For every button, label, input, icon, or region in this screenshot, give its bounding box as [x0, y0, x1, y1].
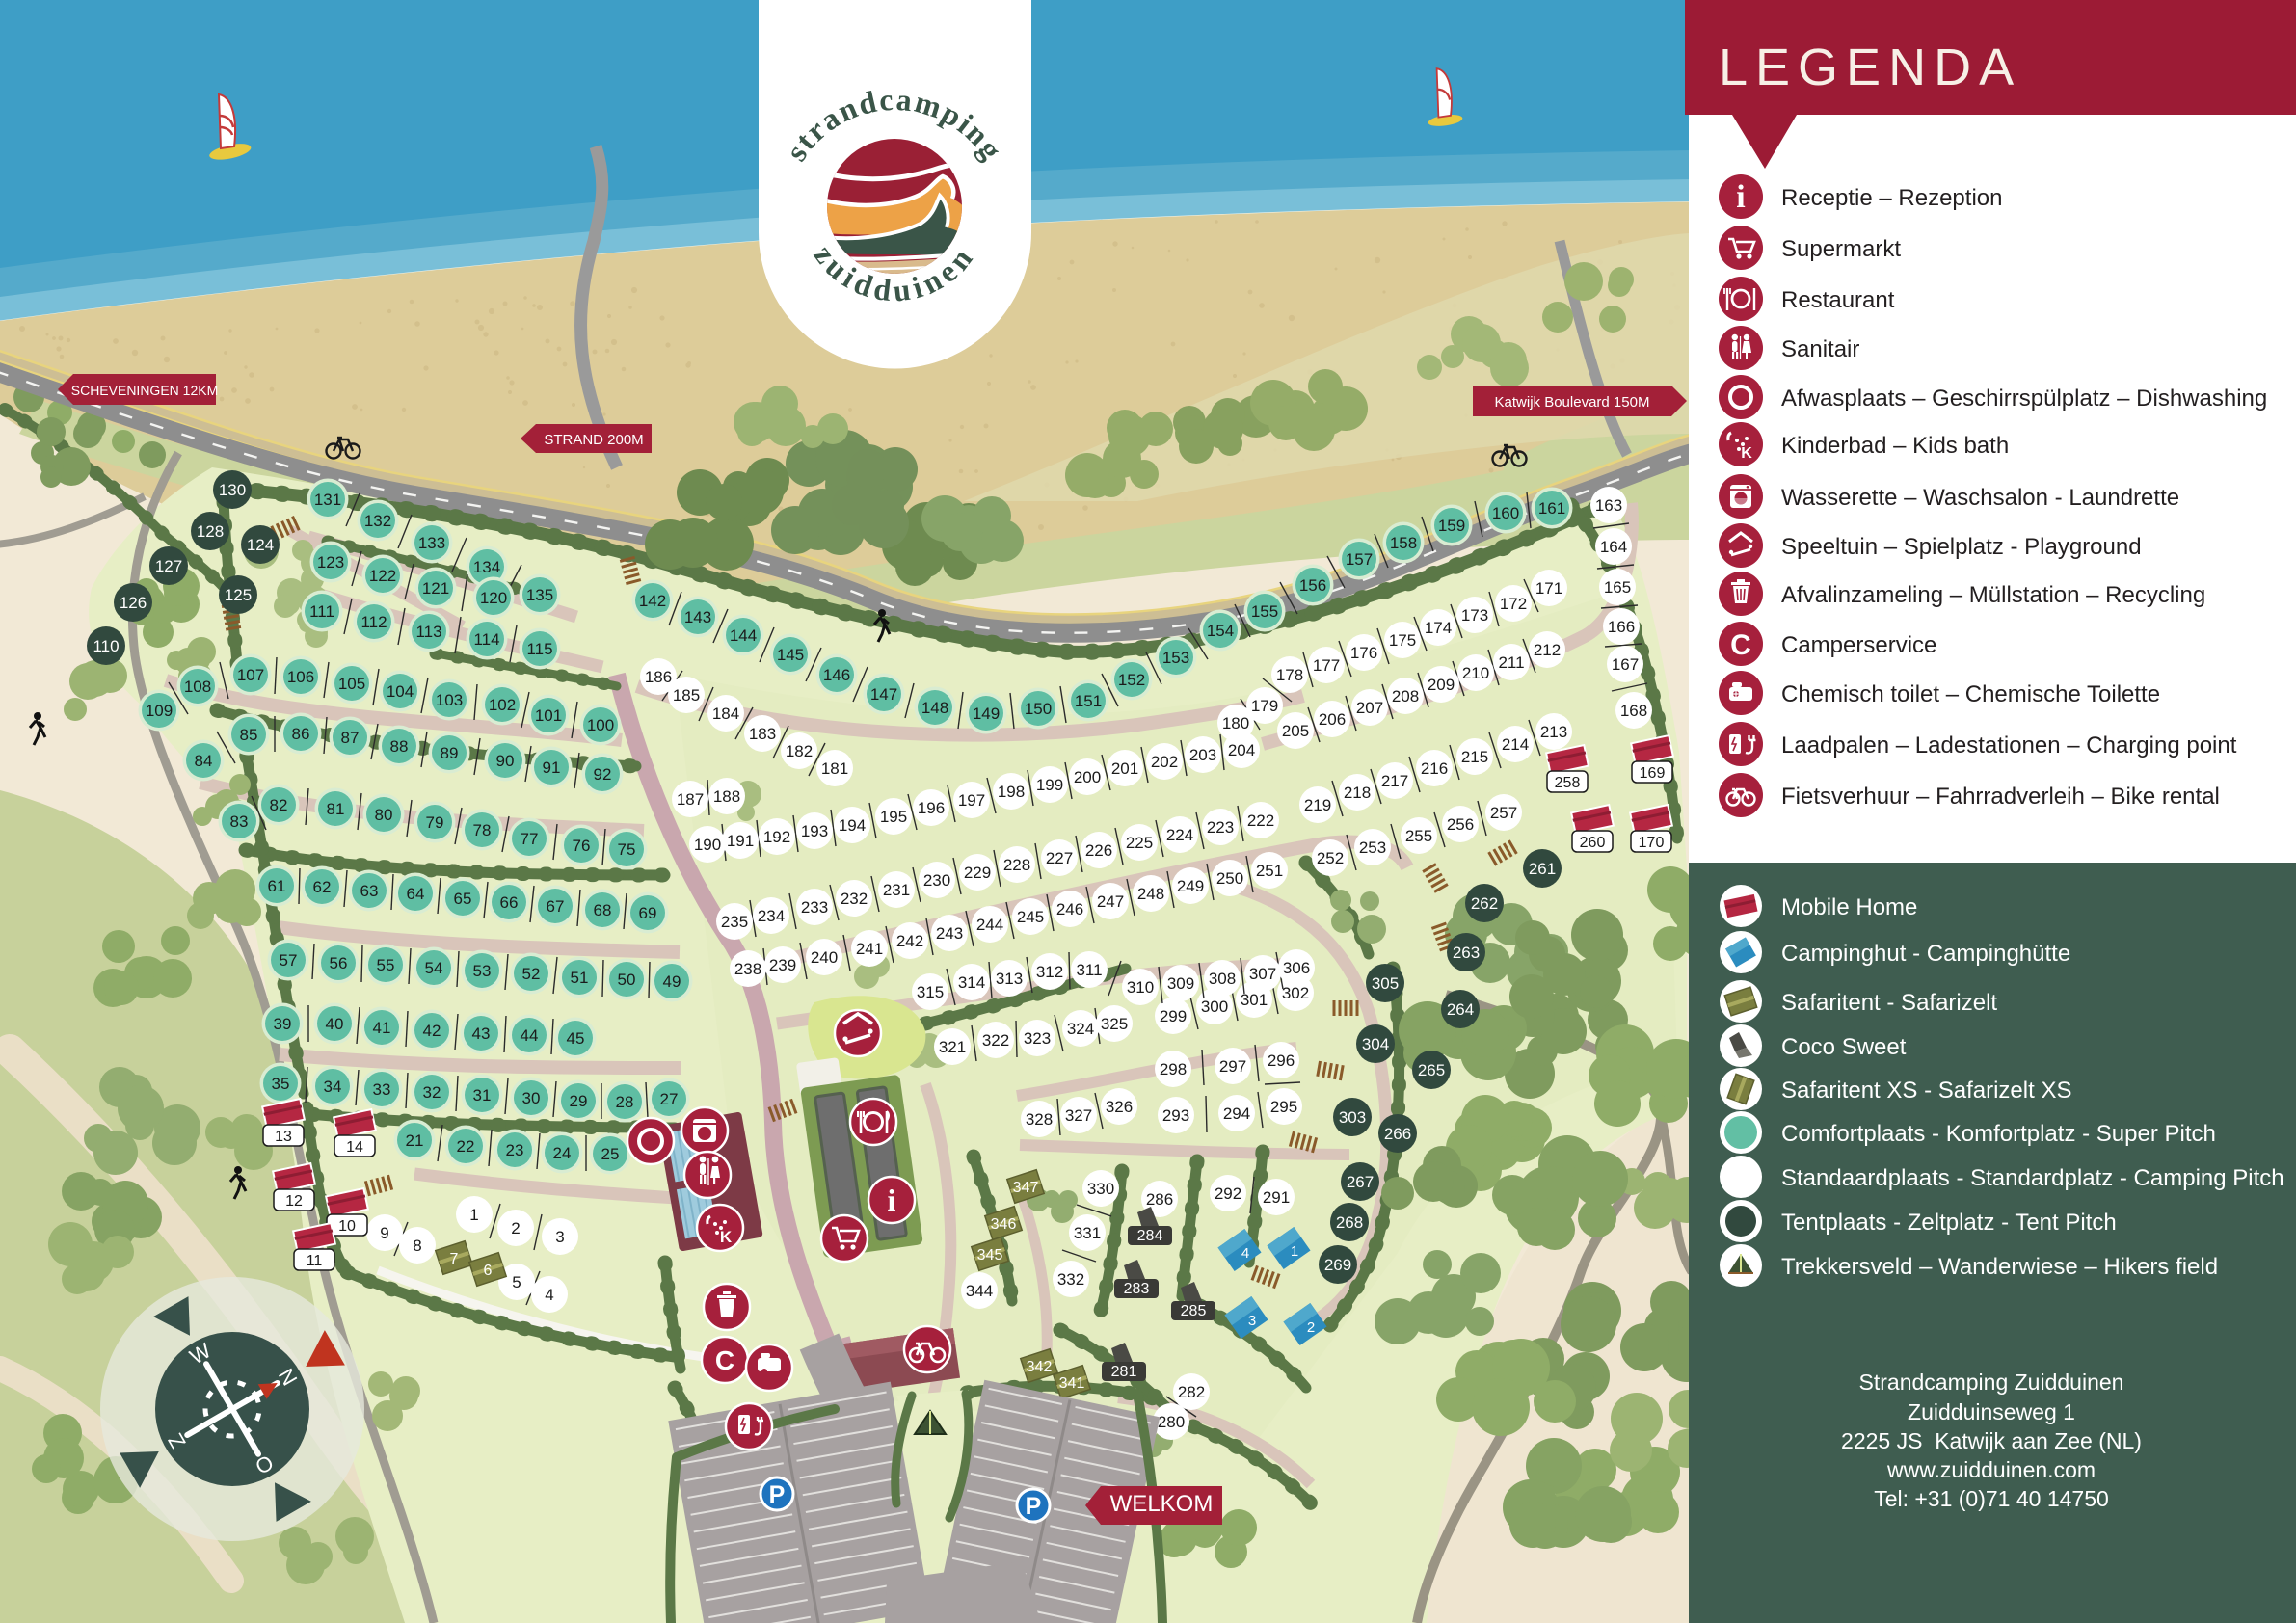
svg-text:150: 150 — [1025, 700, 1052, 718]
svg-text:Supermarkt: Supermarkt — [1781, 236, 1901, 262]
svg-text:251: 251 — [1256, 862, 1283, 880]
svg-text:Coco Sweet: Coco Sweet — [1781, 1034, 1907, 1060]
svg-text:297: 297 — [1219, 1057, 1246, 1076]
svg-text:148: 148 — [921, 699, 948, 717]
svg-text:197: 197 — [958, 791, 985, 810]
svg-text:346: 346 — [991, 1216, 1017, 1233]
svg-text:230: 230 — [923, 871, 950, 890]
svg-text:91: 91 — [543, 758, 561, 777]
svg-text:64: 64 — [407, 885, 425, 903]
svg-text:175: 175 — [1389, 631, 1416, 650]
svg-text:300: 300 — [1201, 998, 1228, 1016]
svg-text:309: 309 — [1167, 974, 1194, 993]
svg-text:182: 182 — [786, 742, 813, 760]
svg-text:225: 225 — [1126, 834, 1153, 852]
svg-text:115: 115 — [526, 640, 552, 658]
svg-text:84: 84 — [195, 752, 213, 770]
svg-text:330: 330 — [1087, 1180, 1114, 1198]
svg-text:326: 326 — [1106, 1098, 1133, 1116]
svg-text:209: 209 — [1428, 676, 1455, 694]
svg-text:i: i — [888, 1183, 896, 1217]
svg-text:235: 235 — [721, 913, 748, 931]
svg-text:35: 35 — [272, 1075, 290, 1093]
svg-text:7: 7 — [450, 1251, 459, 1267]
svg-text:130: 130 — [219, 481, 246, 499]
svg-text:25: 25 — [601, 1145, 620, 1163]
svg-text:82: 82 — [270, 796, 288, 814]
svg-text:201: 201 — [1111, 759, 1138, 778]
svg-text:3: 3 — [1248, 1313, 1256, 1329]
svg-text:i: i — [1736, 179, 1745, 215]
svg-text:249: 249 — [1177, 877, 1204, 895]
svg-text:WELKOM: WELKOM — [1110, 1491, 1214, 1517]
svg-text:223: 223 — [1207, 818, 1234, 837]
svg-text:126: 126 — [120, 594, 147, 612]
svg-text:187: 187 — [677, 790, 704, 809]
svg-text:174: 174 — [1425, 619, 1452, 637]
svg-text:62: 62 — [313, 878, 332, 896]
svg-text:C: C — [715, 1345, 734, 1375]
svg-text:Fietsverhuur – Fahrradverleih: Fietsverhuur – Fahrradverleih – Bike ren… — [1781, 784, 2220, 810]
svg-text:307: 307 — [1249, 965, 1276, 983]
svg-text:56: 56 — [330, 954, 348, 972]
svg-text:Restaurant: Restaurant — [1781, 287, 1895, 313]
svg-text:13: 13 — [275, 1129, 292, 1145]
svg-text:153: 153 — [1162, 649, 1189, 667]
svg-text:240: 240 — [811, 948, 838, 967]
svg-text:80: 80 — [375, 806, 393, 824]
svg-text:77: 77 — [521, 830, 539, 848]
svg-text:198: 198 — [998, 783, 1025, 801]
svg-text:Speeltuin – Spielplatz - Playg: Speeltuin – Spielplatz - Playground — [1781, 534, 2142, 560]
svg-text:233: 233 — [801, 898, 828, 917]
svg-text:280: 280 — [1158, 1413, 1185, 1431]
svg-text:30: 30 — [522, 1089, 541, 1107]
svg-text:86: 86 — [292, 725, 310, 743]
svg-text:Tel: +31 (0)71 40 14750: Tel: +31 (0)71 40 14750 — [1874, 1486, 2109, 1511]
svg-text:128: 128 — [197, 522, 224, 541]
svg-text:85: 85 — [240, 726, 258, 744]
svg-text:111: 111 — [309, 602, 334, 621]
svg-text:305: 305 — [1372, 974, 1399, 993]
svg-text:89: 89 — [441, 744, 459, 762]
svg-text:345: 345 — [977, 1247, 1003, 1264]
svg-text:122: 122 — [369, 567, 396, 585]
svg-text:33: 33 — [373, 1080, 391, 1099]
svg-text:155: 155 — [1251, 602, 1278, 621]
svg-text:5: 5 — [512, 1273, 521, 1291]
svg-text:28: 28 — [616, 1093, 634, 1111]
svg-text:106: 106 — [287, 668, 314, 686]
svg-text:27: 27 — [660, 1090, 679, 1108]
svg-text:203: 203 — [1189, 746, 1216, 764]
svg-text:133: 133 — [418, 534, 445, 552]
svg-text:325: 325 — [1101, 1015, 1128, 1033]
svg-text:151: 151 — [1075, 692, 1102, 710]
svg-text:327: 327 — [1065, 1106, 1092, 1125]
svg-text:21: 21 — [406, 1131, 424, 1150]
svg-text:217: 217 — [1381, 772, 1408, 790]
svg-text:143: 143 — [684, 608, 711, 626]
svg-text:113: 113 — [415, 623, 441, 641]
svg-text:2: 2 — [1307, 1319, 1315, 1336]
svg-text:Afwasplaats – Geschirrspülplat: Afwasplaats – Geschirrspülplatz – Dishwa… — [1781, 386, 2267, 412]
svg-text:Safaritent XS - Safarizelt XS: Safaritent XS - Safarizelt XS — [1781, 1078, 2071, 1104]
svg-text:267: 267 — [1347, 1173, 1374, 1191]
svg-text:103: 103 — [436, 691, 463, 709]
svg-text:227: 227 — [1046, 849, 1073, 867]
svg-text:323: 323 — [1024, 1029, 1051, 1048]
svg-text:324: 324 — [1067, 1020, 1094, 1038]
svg-text:265: 265 — [1418, 1061, 1445, 1079]
svg-text:208: 208 — [1392, 687, 1419, 705]
svg-text:123: 123 — [317, 553, 344, 572]
svg-text:Comfortplaats - Komfortplatz -: Comfortplaats - Komfortplatz - Super Pit… — [1781, 1121, 2216, 1147]
svg-text:114: 114 — [473, 630, 499, 649]
svg-text:302: 302 — [1282, 984, 1309, 1002]
svg-text:269: 269 — [1324, 1256, 1351, 1274]
svg-text:45: 45 — [567, 1029, 585, 1048]
svg-text:6: 6 — [484, 1263, 493, 1279]
svg-text:76: 76 — [573, 837, 591, 855]
svg-text:169: 169 — [1640, 765, 1666, 782]
svg-text:157: 157 — [1346, 550, 1373, 569]
svg-text:204: 204 — [1228, 741, 1255, 759]
svg-text:67: 67 — [547, 897, 565, 916]
svg-text:284: 284 — [1137, 1228, 1163, 1244]
svg-text:57: 57 — [280, 951, 298, 970]
svg-text:192: 192 — [763, 828, 790, 846]
svg-text:308: 308 — [1209, 970, 1236, 988]
svg-text:214: 214 — [1502, 735, 1529, 754]
svg-text:166: 166 — [1608, 618, 1635, 636]
svg-text:146: 146 — [823, 666, 850, 684]
svg-text:178: 178 — [1276, 666, 1303, 684]
svg-text:158: 158 — [1390, 534, 1417, 552]
svg-text:152: 152 — [1118, 671, 1145, 689]
svg-text:186: 186 — [645, 668, 672, 686]
svg-text:200: 200 — [1074, 768, 1101, 786]
svg-text:Standaardplaats - Standardplat: Standaardplaats - Standardplatz - Campin… — [1781, 1165, 2284, 1191]
svg-text:342: 342 — [1027, 1359, 1053, 1375]
svg-text:135: 135 — [526, 586, 553, 604]
svg-text:247: 247 — [1097, 892, 1124, 911]
svg-text:206: 206 — [1319, 710, 1346, 729]
svg-text:295: 295 — [1270, 1098, 1297, 1116]
svg-text:107: 107 — [237, 666, 264, 684]
svg-text:C: C — [1730, 629, 1751, 661]
svg-text:224: 224 — [1166, 826, 1193, 844]
svg-text:312: 312 — [1036, 963, 1063, 981]
svg-text:181: 181 — [821, 759, 848, 778]
svg-text:LEGENDA: LEGENDA — [1719, 39, 2021, 96]
svg-text:191: 191 — [727, 832, 754, 850]
svg-text:229: 229 — [964, 864, 991, 882]
svg-text:39: 39 — [274, 1015, 292, 1033]
svg-text:170: 170 — [1639, 835, 1665, 851]
svg-text:232: 232 — [841, 890, 868, 908]
svg-text:256: 256 — [1447, 815, 1474, 834]
svg-text:44: 44 — [521, 1026, 539, 1045]
svg-text:177: 177 — [1313, 656, 1340, 675]
svg-text:261: 261 — [1529, 860, 1556, 878]
svg-text:108: 108 — [184, 678, 211, 696]
svg-text:199: 199 — [1036, 776, 1063, 794]
svg-text:294: 294 — [1223, 1104, 1250, 1123]
svg-text:344: 344 — [966, 1282, 993, 1300]
svg-text:81: 81 — [327, 800, 345, 818]
svg-text:303: 303 — [1339, 1108, 1366, 1127]
svg-text:311: 311 — [1076, 961, 1102, 979]
svg-text:4: 4 — [545, 1286, 553, 1304]
svg-text:68: 68 — [594, 901, 612, 919]
svg-text:105: 105 — [338, 675, 365, 693]
svg-text:298: 298 — [1160, 1060, 1187, 1078]
svg-text:Camperservice: Camperservice — [1781, 632, 1936, 658]
svg-text:285: 285 — [1181, 1303, 1207, 1319]
svg-text:179: 179 — [1251, 697, 1278, 715]
svg-text:241: 241 — [856, 940, 883, 958]
svg-text:49: 49 — [663, 972, 681, 991]
svg-text:282: 282 — [1178, 1383, 1205, 1401]
svg-text:215: 215 — [1461, 748, 1488, 766]
svg-text:218: 218 — [1344, 784, 1371, 802]
svg-text:216: 216 — [1421, 759, 1448, 778]
svg-text:180: 180 — [1222, 714, 1249, 732]
svg-text:160: 160 — [1492, 504, 1519, 522]
svg-text:34: 34 — [324, 1078, 342, 1096]
svg-text:109: 109 — [146, 702, 173, 720]
svg-text:145: 145 — [777, 646, 804, 664]
svg-text:164: 164 — [1600, 538, 1627, 556]
svg-text:266: 266 — [1384, 1125, 1411, 1143]
svg-text:172: 172 — [1500, 595, 1527, 613]
svg-text:167: 167 — [1612, 655, 1639, 674]
svg-text:252: 252 — [1317, 849, 1344, 867]
svg-text:112: 112 — [360, 613, 387, 631]
svg-text:313: 313 — [996, 970, 1023, 988]
svg-text:171: 171 — [1535, 579, 1562, 598]
svg-text:205: 205 — [1282, 722, 1309, 740]
svg-text:226: 226 — [1085, 841, 1112, 860]
svg-text:173: 173 — [1461, 606, 1488, 625]
svg-text:132: 132 — [364, 512, 391, 530]
svg-text:144: 144 — [730, 626, 757, 645]
svg-text:Wasserette – Waschsalon - Lau: Wasserette – Waschsalon - Laundrette — [1781, 485, 2179, 511]
svg-text:264: 264 — [1447, 1000, 1474, 1019]
svg-text:83: 83 — [230, 812, 249, 831]
svg-text:STRAND 200M: STRAND 200M — [544, 432, 643, 448]
svg-text:314: 314 — [958, 973, 985, 992]
svg-text:Chemisch toilet – Chemische To: Chemisch toilet – Chemische Toilette — [1781, 681, 2160, 707]
svg-text:124: 124 — [247, 536, 274, 554]
svg-text:262: 262 — [1471, 894, 1498, 913]
svg-text:1: 1 — [1291, 1243, 1298, 1260]
svg-text:42: 42 — [423, 1022, 441, 1040]
svg-text:66: 66 — [500, 893, 519, 912]
svg-text:125: 125 — [225, 586, 252, 604]
svg-text:P: P — [769, 1481, 786, 1508]
svg-text:228: 228 — [1003, 856, 1030, 874]
svg-text:195: 195 — [880, 808, 907, 826]
svg-text:190: 190 — [694, 836, 721, 854]
svg-text:92: 92 — [594, 765, 612, 784]
svg-text:88: 88 — [390, 737, 409, 756]
svg-text:161: 161 — [1538, 499, 1565, 518]
svg-text:55: 55 — [377, 956, 395, 974]
svg-text:202: 202 — [1151, 753, 1178, 771]
svg-text:Safaritent - Safarizelt: Safaritent - Safarizelt — [1781, 990, 1997, 1016]
svg-text:110: 110 — [93, 637, 119, 655]
svg-text:248: 248 — [1137, 885, 1164, 903]
svg-text:134: 134 — [473, 558, 500, 576]
svg-text:168: 168 — [1620, 702, 1647, 720]
svg-text:52: 52 — [522, 965, 541, 983]
svg-text:244: 244 — [976, 916, 1003, 934]
svg-text:102: 102 — [489, 696, 516, 714]
svg-text:341: 341 — [1059, 1375, 1085, 1392]
svg-text:Katwijk Boulevard 150M: Katwijk Boulevard 150M — [1495, 394, 1650, 411]
svg-text:14: 14 — [346, 1139, 363, 1156]
svg-text:222: 222 — [1247, 811, 1274, 830]
svg-text:154: 154 — [1207, 622, 1234, 640]
svg-text:Zuidduinseweg 1: Zuidduinseweg 1 — [1908, 1399, 2075, 1424]
svg-text:310: 310 — [1127, 978, 1154, 997]
svg-text:4: 4 — [1241, 1245, 1249, 1262]
svg-text:101: 101 — [535, 706, 562, 725]
svg-text:257: 257 — [1490, 804, 1517, 822]
svg-text:239: 239 — [769, 956, 796, 974]
svg-text:51: 51 — [571, 969, 589, 987]
svg-text:69: 69 — [639, 904, 657, 922]
svg-text:79: 79 — [426, 813, 444, 832]
svg-text:234: 234 — [758, 907, 785, 925]
svg-text:K: K — [720, 1228, 733, 1246]
svg-text:293: 293 — [1162, 1106, 1189, 1125]
svg-text:286: 286 — [1146, 1190, 1173, 1209]
svg-text:K: K — [1741, 445, 1752, 462]
svg-text:Receptie – Rezeption: Receptie – Rezeption — [1781, 185, 2002, 211]
svg-text:156: 156 — [1299, 576, 1326, 595]
svg-text:Laadpalen – Ladestationen – Ch: Laadpalen – Ladestationen – Charging poi… — [1781, 732, 2237, 758]
svg-text:31: 31 — [473, 1086, 492, 1104]
svg-text:210: 210 — [1462, 664, 1489, 682]
svg-text:SCHEVENINGEN 12KM: SCHEVENINGEN 12KM — [71, 383, 218, 398]
svg-text:176: 176 — [1350, 644, 1377, 662]
svg-text:11: 11 — [307, 1253, 323, 1269]
svg-text:211: 211 — [1498, 653, 1524, 672]
svg-text:75: 75 — [618, 840, 636, 859]
svg-text:142: 142 — [639, 592, 666, 610]
svg-text:322: 322 — [982, 1031, 1009, 1050]
svg-text:40: 40 — [326, 1015, 344, 1033]
svg-text:328: 328 — [1026, 1110, 1053, 1129]
svg-text:246: 246 — [1056, 900, 1083, 918]
svg-text:207: 207 — [1356, 699, 1383, 717]
svg-text:24: 24 — [553, 1144, 572, 1162]
svg-text:263: 263 — [1453, 944, 1480, 962]
svg-text:www.zuidduinen.com: www.zuidduinen.com — [1886, 1457, 2096, 1482]
svg-text:54: 54 — [425, 959, 443, 977]
svg-text:Mobile Home: Mobile Home — [1781, 894, 1917, 920]
svg-text:2225 JS Katwijk aan Zee (NL): 2225 JS Katwijk aan Zee (NL) — [1841, 1428, 2142, 1453]
svg-text:23: 23 — [506, 1141, 524, 1159]
svg-text:255: 255 — [1405, 827, 1432, 845]
svg-text:104: 104 — [387, 682, 414, 701]
svg-text:231: 231 — [883, 881, 910, 899]
svg-text:268: 268 — [1336, 1213, 1363, 1232]
svg-text:243: 243 — [936, 924, 963, 943]
svg-text:127: 127 — [155, 557, 182, 575]
svg-text:63: 63 — [360, 882, 379, 900]
svg-text:61: 61 — [268, 877, 286, 895]
svg-text:331: 331 — [1074, 1224, 1101, 1242]
svg-text:163: 163 — [1595, 496, 1622, 515]
svg-text:213: 213 — [1540, 723, 1567, 741]
svg-text:196: 196 — [918, 799, 945, 817]
svg-text:P: P — [1026, 1493, 1042, 1520]
svg-text:258: 258 — [1555, 775, 1581, 791]
svg-text:281: 281 — [1111, 1364, 1137, 1380]
svg-text:245: 245 — [1017, 908, 1044, 926]
svg-text:3: 3 — [555, 1228, 564, 1246]
svg-text:260: 260 — [1580, 835, 1606, 851]
svg-text:219: 219 — [1304, 796, 1331, 814]
svg-text:8: 8 — [413, 1237, 421, 1255]
svg-text:159: 159 — [1438, 517, 1465, 535]
svg-text:9: 9 — [380, 1224, 388, 1242]
svg-text:Strandcamping Zuidduinen: Strandcamping Zuidduinen — [1859, 1370, 2124, 1395]
svg-text:194: 194 — [839, 816, 866, 835]
svg-text:238: 238 — [734, 960, 761, 978]
svg-text:193: 193 — [801, 822, 828, 840]
svg-text:131: 131 — [314, 491, 341, 509]
svg-text:184: 184 — [712, 705, 739, 723]
svg-text:32: 32 — [423, 1083, 441, 1102]
svg-text:100: 100 — [587, 716, 614, 734]
svg-text:165: 165 — [1604, 578, 1631, 597]
svg-text:147: 147 — [870, 685, 897, 704]
svg-text:Trekkersveld – Wanderwiese – H: Trekkersveld – Wanderwiese – Hikers fiel… — [1781, 1254, 2218, 1280]
svg-text:332: 332 — [1057, 1270, 1084, 1289]
svg-text:10: 10 — [338, 1218, 356, 1235]
svg-text:Campinghut - Campinghütte: Campinghut - Campinghütte — [1781, 941, 2070, 967]
svg-text:149: 149 — [973, 705, 1000, 723]
svg-text:43: 43 — [472, 1024, 491, 1043]
svg-text:1: 1 — [469, 1206, 478, 1224]
svg-text:120: 120 — [480, 589, 507, 607]
svg-text:41: 41 — [373, 1019, 391, 1037]
svg-text:304: 304 — [1362, 1035, 1389, 1053]
svg-text:283: 283 — [1124, 1281, 1150, 1297]
svg-text:65: 65 — [454, 890, 472, 908]
svg-text:78: 78 — [473, 821, 492, 839]
svg-text:306: 306 — [1283, 959, 1310, 977]
svg-text:Tentplaats - Zeltplatz - Tent: Tentplaats - Zeltplatz - Tent Pitch — [1781, 1210, 2117, 1236]
svg-text:121: 121 — [422, 579, 449, 598]
svg-text:188: 188 — [713, 787, 740, 806]
svg-text:22: 22 — [457, 1137, 475, 1156]
svg-text:315: 315 — [917, 983, 944, 1001]
svg-text:292: 292 — [1215, 1184, 1241, 1203]
svg-text:Kinderbad – Kids bath: Kinderbad – Kids bath — [1781, 433, 2009, 459]
svg-text:242: 242 — [896, 932, 923, 950]
svg-text:347: 347 — [1013, 1180, 1039, 1196]
svg-text:321: 321 — [939, 1038, 966, 1056]
svg-text:183: 183 — [749, 725, 776, 743]
svg-text:29: 29 — [570, 1092, 588, 1110]
svg-text:87: 87 — [341, 729, 360, 747]
